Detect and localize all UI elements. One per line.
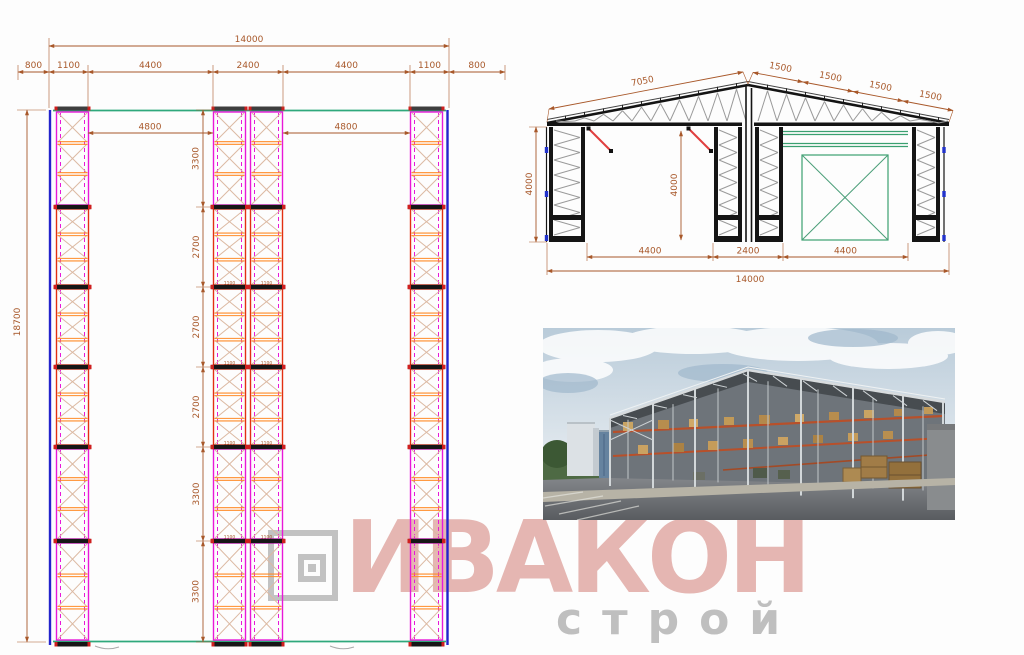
elev-dim-bay1: 4400 <box>639 247 662 257</box>
plan-dim-bay-right: 4800 <box>335 123 358 133</box>
elevation-view: 7050 1500 1500 1500 1500 4000 4000 <box>525 61 953 285</box>
plan-dim-total: 14000 <box>235 35 264 45</box>
plan-vdim-5: 3300 <box>192 482 202 505</box>
plan-dim-bay-left: 4800 <box>139 123 162 133</box>
plan-dim-4400-right: 4400 <box>335 61 358 71</box>
plan-view: 14000 800 1100 4400 2400 4400 1100 800 4… <box>13 35 505 649</box>
elev-dim-1500-4: 1500 <box>918 89 943 103</box>
plan-vertical-chain <box>196 110 213 642</box>
elev-dim-1500-1: 1500 <box>768 61 793 75</box>
elev-dim-bay3: 4400 <box>834 247 857 257</box>
plan-vdim-3: 2700 <box>192 315 202 338</box>
elev-dim-height-left: 4000 <box>525 172 535 195</box>
joint-label: 1100 <box>224 535 236 541</box>
elev-dim-bay2: 2400 <box>737 247 760 257</box>
plan-vdim-2: 2700 <box>192 235 202 258</box>
plan-dim-4400-left: 4400 <box>139 61 162 71</box>
elev-dim-slope-left: 7050 <box>630 75 655 89</box>
joint-label: 1100 <box>224 281 236 287</box>
elev-dim-1500-3: 1500 <box>868 80 893 94</box>
elev-dim-1500-2: 1500 <box>818 70 843 84</box>
joint-label: 1100 <box>261 361 273 367</box>
joint-label: 1100 <box>224 441 236 447</box>
elevation-columns <box>549 127 940 242</box>
plan-dim-1100-right: 1100 <box>418 61 441 71</box>
elev-dim-height-mid: 4000 <box>670 173 680 196</box>
plan-dim-800-left: 800 <box>25 61 42 71</box>
drawing-sheet: ИВАКОН строй <box>0 0 1024 655</box>
warehouse-photo <box>543 328 955 520</box>
plan-dim-2400: 2400 <box>237 61 260 71</box>
joint-label: 1100 <box>224 361 236 367</box>
elev-dim-total: 14000 <box>736 275 765 285</box>
plan-vdim-6: 3300 <box>192 580 202 603</box>
joint-label: 1100 <box>261 441 273 447</box>
joint-label: 1100 <box>261 281 273 287</box>
elevation-structure <box>545 82 949 243</box>
plan-dim-800-right: 800 <box>468 61 485 71</box>
joint-label: 1100 <box>261 535 273 541</box>
plan-dim-height: 18700 <box>13 307 23 336</box>
plan-dim-1100-left: 1100 <box>57 61 80 71</box>
plan-column-trusses <box>54 107 446 647</box>
plan-vdim-1: 3300 <box>192 147 202 170</box>
plan-vdim-4: 2700 <box>192 395 202 418</box>
plan-structure <box>50 110 448 649</box>
